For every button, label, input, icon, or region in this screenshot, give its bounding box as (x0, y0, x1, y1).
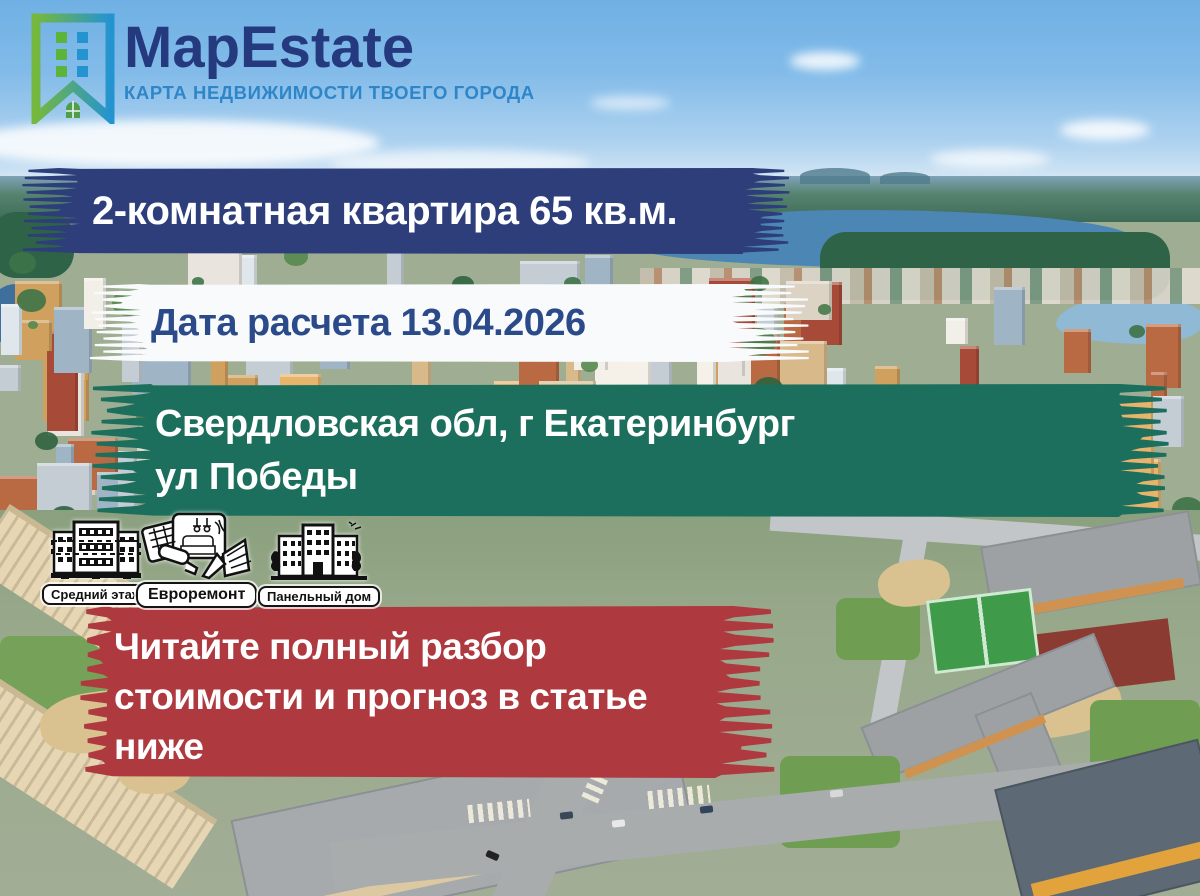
tree (1129, 325, 1145, 338)
feature-renovation: Евроремонт (136, 510, 257, 608)
car (560, 811, 574, 819)
mid-floor-building-icon (51, 518, 141, 582)
cta-line-2: стоимости и прогноз в статье (114, 672, 778, 722)
logo-tagline: КАРТА НЕДВИЖИМОСТИ ТВОЕГО ГОРОДА (124, 82, 535, 104)
apartment-banner-text: 2-комнатная квартира 65 кв.м. (92, 189, 793, 234)
date-banner-text: Дата расчета 13.04.2026 (151, 302, 815, 345)
tree (28, 321, 38, 329)
car (700, 805, 714, 813)
feature-panel-house: Панельный дом (258, 520, 380, 607)
cta-line-3: ниже (114, 722, 778, 772)
renovation-tools-icon (141, 510, 253, 580)
real-estate-promo-poster: MapEstate КАРТА НЕДВИЖИМОСТИ ТВОЕГО ГОРО… (0, 0, 1200, 896)
logo-title: MapEstate (124, 16, 535, 80)
feature-label: Панельный дом (258, 586, 380, 607)
date-banner: Дата расчета 13.04.2026 (85, 284, 815, 362)
car (612, 819, 626, 827)
tree (750, 276, 769, 291)
address-line-2: ул Победы (155, 451, 1173, 504)
cta-banner: Читайте полный разбор стоимости и прогно… (78, 606, 778, 778)
logo-building-bookmark-icon (30, 12, 116, 124)
feature-label: Средний этаж (42, 584, 150, 605)
tree (17, 289, 45, 312)
tree (9, 252, 36, 274)
cta-line-1: Читайте полный разбор (114, 622, 778, 672)
tree (818, 304, 831, 314)
panel-house-icon (271, 520, 367, 584)
logo-text-block: MapEstate КАРТА НЕДВИЖИМОСТИ ТВОЕГО ГОРО… (124, 16, 535, 104)
car (830, 789, 844, 797)
feature-label: Евроремонт (136, 582, 257, 608)
apartment-banner: 2-комнатная квартира 65 кв.м. (18, 168, 793, 254)
feature-mid-floor: Средний этаж (42, 518, 150, 605)
tree (35, 432, 58, 450)
lawn (836, 598, 920, 660)
address-line-1: Свердловская обл, г Екатеринбург (155, 398, 1173, 451)
address-banner: Свердловская обл, г Екатеринбург ул Побе… (88, 384, 1173, 517)
